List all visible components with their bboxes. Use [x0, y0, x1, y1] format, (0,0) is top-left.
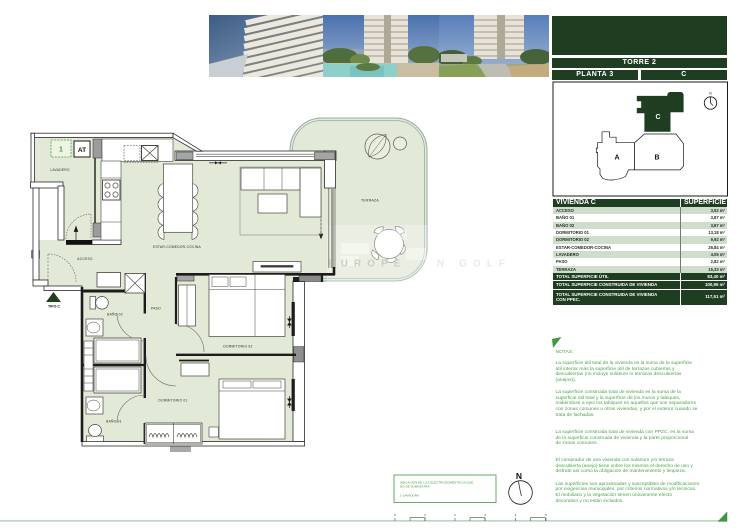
svg-text:A: A: [614, 155, 619, 162]
svg-text:N GOLF: N GOLF: [437, 259, 511, 270]
svg-text:TERRAZA: TERRAZA: [361, 199, 379, 203]
svg-text:N: N: [516, 471, 522, 481]
svg-text:1: 1: [424, 513, 426, 517]
svg-text:2: 2: [454, 513, 456, 517]
svg-text:TIPO C: TIPO C: [48, 305, 60, 309]
svg-text:EUROPE: EUROPE: [328, 259, 407, 270]
svg-text:DORMITORIO 02: DORMITORIO 02: [223, 344, 252, 348]
svg-text:C: C: [655, 114, 660, 121]
svg-text:0: 0: [394, 513, 396, 517]
svg-text:LAVADERO: LAVADERO: [50, 168, 70, 172]
svg-text:B: B: [654, 155, 659, 162]
svg-text:AT: AT: [78, 147, 86, 154]
svg-text:4: 4: [515, 513, 517, 517]
svg-text:ESTAR-COMEDOR-COCINA: ESTAR-COMEDOR-COCINA: [153, 245, 202, 249]
svg-text:DORMITORIO 01: DORMITORIO 01: [158, 398, 187, 402]
svg-text:1: 1: [59, 147, 63, 154]
svg-text:BAÑO 01: BAÑO 01: [106, 418, 122, 423]
svg-text:1-LAVADORA: 1-LAVADORA: [400, 494, 420, 498]
svg-text:PASO: PASO: [151, 306, 161, 310]
svg-text:ACCESO: ACCESO: [77, 257, 93, 261]
svg-text:3: 3: [484, 513, 486, 517]
svg-text:5: 5: [545, 513, 547, 517]
svg-text:BAÑO 02: BAÑO 02: [107, 311, 123, 316]
svg-text:NO SE SUMINISTRA:: NO SE SUMINISTRA:: [400, 485, 431, 489]
